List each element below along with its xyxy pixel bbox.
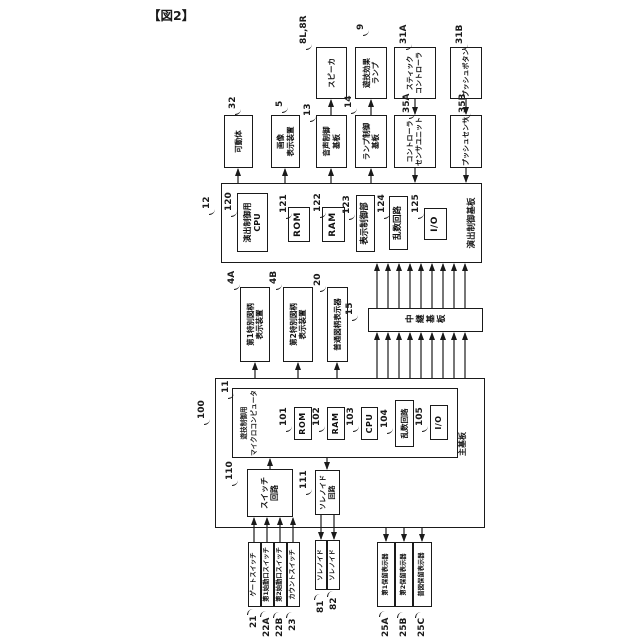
sound-control-board-box: 音声制御 基板 [316,115,347,168]
ref-lamp-board: 14 [344,95,354,108]
lamp-control-board-box: ランプ制御 基板 [355,115,387,168]
ref-second-start-switch: 22B [275,618,285,637]
ref-lamp: 9 [356,24,366,30]
ref-image-display: 5 [275,101,285,107]
ref-normal-symbol-display: 20 [313,273,323,286]
ref-main-rom: 101 [279,407,289,426]
image-display-device-box: 画像 表示装置 [271,115,300,168]
ref-presentation-cpu: 120 [224,192,234,211]
relay-board: 中継基板 [368,308,483,332]
movable-body-box: 可動体 [224,115,253,168]
solenoid-82-box: ソレノイド [327,540,340,590]
normal-hold-display-box: 普図保留表示器 [413,542,432,607]
patent-figure-page: 【図2】 [0,0,640,640]
push-button-box: プッシュボタン [450,47,482,99]
presentation-cpu-box: 演出制御用 CPU [237,193,268,252]
ref-presentation-rom: 121 [279,194,289,213]
ref-second-hold-display: 25B [399,618,409,637]
main-ram-box: RAM [327,407,345,440]
second-hold-display-box: 第2保留表示器 [395,542,413,607]
solenoid-81-box: ソレノイド [315,540,327,590]
gate-switch-box: ゲートスイッチ [248,542,261,607]
ref-push-button: 31B [455,25,465,44]
main-board-title: 主基板 [457,426,468,462]
push-sensor-box: プッシュセンサ [450,115,482,168]
special-symbol-display-1: 第1特別図柄 表示装置 [240,287,270,362]
ref-controller-sensor: 35A [402,94,412,114]
ref-solenoid-circuit: 111 [299,470,309,489]
ref-microcomputer: 100 [197,400,207,419]
game-effect-lamp-box: 遊技効果 ランプ [355,47,387,99]
ref-presentation-board: 12 [202,196,212,209]
ref-push-sensor: 35B [458,94,468,113]
ref-presentation-ram: 122 [313,193,323,212]
ref-first-start-switch: 22A [262,618,272,638]
second-start-switch-box: 第2始動口スイッチ [274,542,287,607]
ref-main-board: 11 [221,380,231,393]
ref-main-io: 105 [415,407,425,426]
special-symbol-display-2: 第2特別図柄 表示装置 [283,287,313,362]
ref-symbol-display-1: 4A [227,271,237,284]
presentation-io-box: I/O [424,208,447,240]
ref-main-ram: 102 [312,407,322,426]
ref-main-cpu: 103 [346,407,356,426]
first-hold-display-box: 第1保留表示器 [377,542,395,607]
stick-controller-box: スティック コントローラ [394,47,436,99]
ref-symbol-display-2: 4B [269,271,279,284]
ref-presentation-io: 125 [411,194,421,213]
microcomputer-title: 遊技制御用 マイクロコンピュータ [238,389,258,457]
presentation-random-circuit-box: 乱数回路 [389,196,408,250]
main-io-box: I/O [430,405,448,440]
presentation-board-title: 演出制御基板 [465,183,477,263]
display-control-box: 表示制御部 [356,195,375,252]
normal-symbol-display: 普通図柄表示器 [327,287,348,362]
solenoid-circuit-box: ソレノイド 回路 [315,470,340,515]
ref-movable-body: 32 [228,96,238,109]
main-random-circuit-box: 乱数回路 [395,400,414,447]
rotated-diagram: 演出制御基板 演出制御用 CPU ROM RAM 表示制御部 乱数回路 I/O … [0,0,640,640]
first-start-switch-box: 第1始動口スイッチ [261,542,274,607]
ref-solenoid-82: 82 [329,597,339,610]
ref-stick-controller: 31A [399,25,409,45]
ref-speaker: 8L,8R [299,15,309,44]
ref-sound-board: 13 [303,103,313,116]
main-cpu-box: CPU [361,407,378,440]
speaker-box: スピーカ [316,47,347,99]
ref-first-hold-display: 25A [381,618,391,638]
ref-display-control: 123 [342,195,352,214]
ref-normal-hold-display: 25C [417,618,427,637]
controller-sensor-unit-box: コントローラ センサユニット [394,115,436,168]
count-switch-box: カウントスイッチ [287,542,300,607]
ref-main-random: 104 [380,409,390,428]
ref-switch-circuit: 110 [225,461,235,480]
ref-count-switch: 23 [288,618,298,631]
ref-relay-board: 15 [345,302,355,315]
ref-solenoid-81: 81 [316,600,326,613]
switch-circuit-box: スイッチ 回路 [247,469,293,517]
ref-gate-switch: 21 [249,615,259,628]
main-rom-box: ROM [294,407,312,440]
ref-presentation-random: 124 [377,194,387,213]
